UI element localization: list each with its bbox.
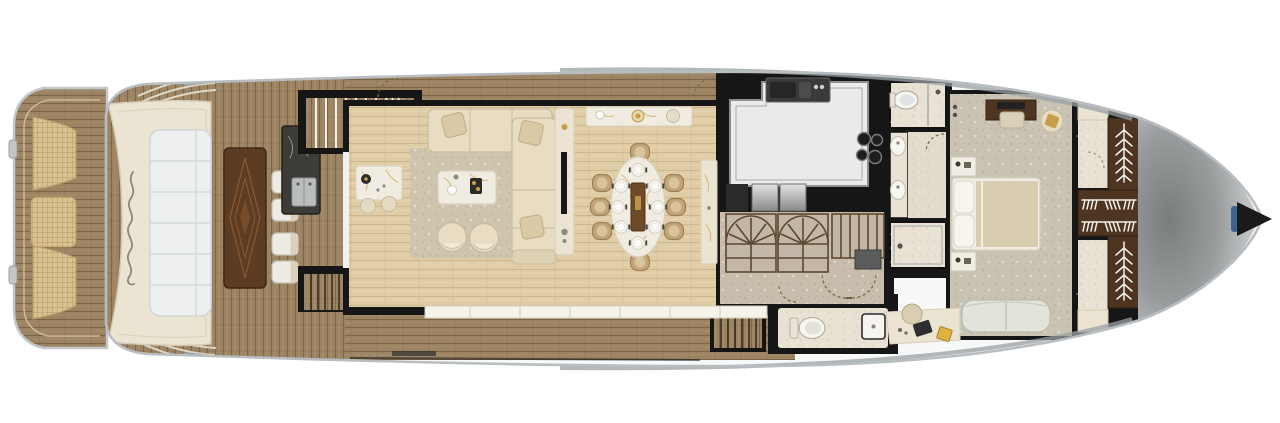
galley-counter-end [726, 184, 748, 211]
swim-platform [9, 88, 107, 348]
pillow [954, 181, 974, 213]
wardrobe [1078, 98, 1140, 332]
galley-sink [766, 78, 830, 102]
duvet [976, 181, 1038, 247]
sink-icon [891, 137, 906, 156]
dining-chair [665, 175, 684, 192]
tv-console [555, 108, 574, 255]
appliance-right [780, 184, 806, 211]
master-loveseat [962, 300, 1050, 332]
desk-chair [902, 304, 922, 324]
sink-icon [891, 181, 906, 200]
dumbwaiter [855, 250, 881, 269]
bar-stool [382, 197, 397, 212]
shower-head-icon [897, 243, 902, 248]
sink-icon [862, 314, 885, 339]
cockpit-chair [272, 261, 298, 283]
wicker-hatch-top [33, 117, 76, 190]
cleat-left-lower [9, 266, 17, 284]
dining-chair [591, 199, 610, 216]
dining-chair [667, 199, 686, 216]
deck-hatch-top-1 [392, 66, 446, 71]
buffet-cabinet [701, 160, 717, 264]
bar-stool [361, 199, 376, 214]
appliance-left [752, 184, 778, 211]
cleat-left-upper [9, 140, 17, 158]
shower-head-icon [936, 90, 941, 95]
wall-sconce [953, 105, 957, 109]
dining-chair [593, 175, 612, 192]
throw-pillow [441, 112, 468, 139]
master-bath [890, 82, 946, 268]
dining-chair [665, 223, 684, 240]
floor-plan-stage [0, 0, 1280, 423]
coffee-table [438, 171, 496, 204]
tv-screen [997, 102, 1025, 109]
master-armchair [1041, 110, 1063, 132]
dining-chair [593, 223, 612, 240]
salon-aft-glass-door [343, 152, 349, 268]
throw-pillow [518, 120, 544, 146]
master-bed [952, 178, 1040, 250]
bow-accent-blue [1231, 206, 1238, 232]
deck-hatch-bottom-1 [392, 351, 436, 356]
wc-shower-room [890, 82, 946, 128]
wall-sconce [953, 113, 957, 117]
transom-seat-module [108, 101, 211, 346]
bench [1000, 112, 1024, 128]
salon-window-strip [425, 306, 767, 318]
nightstand [951, 252, 976, 271]
toilet-icon [790, 318, 825, 339]
wicker-hatch-bottom [33, 246, 76, 319]
tv-screen [561, 152, 567, 214]
boarding-steps-bottom [710, 314, 766, 352]
yacht-floor-plan [0, 0, 1280, 423]
cockpit-chair [272, 233, 298, 255]
sideboard [586, 107, 692, 126]
nightstand [951, 157, 976, 176]
pillow [954, 215, 974, 247]
cockpit-table [224, 148, 266, 288]
vanity [890, 132, 946, 218]
wicker-hatch-mid [31, 197, 76, 247]
throw-pillow [519, 214, 544, 239]
foyer [720, 212, 884, 304]
master-shower [890, 222, 946, 268]
